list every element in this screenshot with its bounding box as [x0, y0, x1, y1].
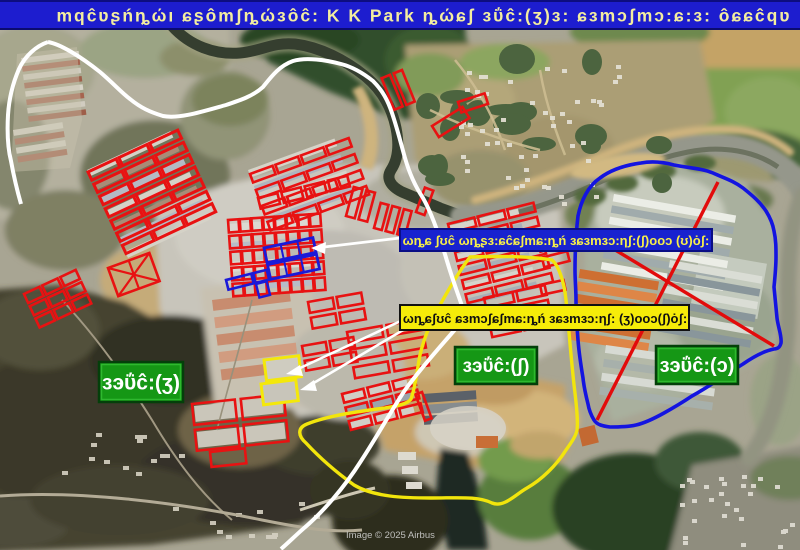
svg-text:ωȵɕ ʃʊĉ ωȵʂз:ɕĉɕʃmɕ:ȵń зɕзmзɔ:: ωȵɕ ʃʊĉ ωȵʂз:ɕĉɕʃmɕ:ȵń зɕзmзɔ:ηʃ:(ʃ)ooɔ … — [403, 233, 710, 248]
svg-text:зэΰĉ:(ʒ): зэΰĉ:(ʒ) — [102, 371, 180, 394]
svg-text:mqĉʋʂńȵώı ɕʂômʃȵώзôĉ: K K Par: mqĉʋʂńȵώı ɕʂômʃȵώзôĉ: K K Park ȵώɕʃ зΰĉ:… — [56, 6, 791, 26]
svg-text:зэΰĉ:(ʃ): зэΰĉ:(ʃ) — [463, 356, 530, 377]
svg-text:ωȵɕʃʊĉ ɕзmɔʃɕʃmɕ:ȵń зɕзmзɔ:ηʃ:: ωȵɕʃʊĉ ɕзmɔʃɕʃmɕ:ȵń зɕзmзɔ:ηʃ: (ʒ)ooɔ(ʃ)… — [403, 311, 687, 326]
svg-text:зэΰĉ:(ɔ): зэΰĉ:(ɔ) — [660, 355, 735, 377]
svg-text:Image © 2025 Airbus: Image © 2025 Airbus — [346, 530, 435, 541]
